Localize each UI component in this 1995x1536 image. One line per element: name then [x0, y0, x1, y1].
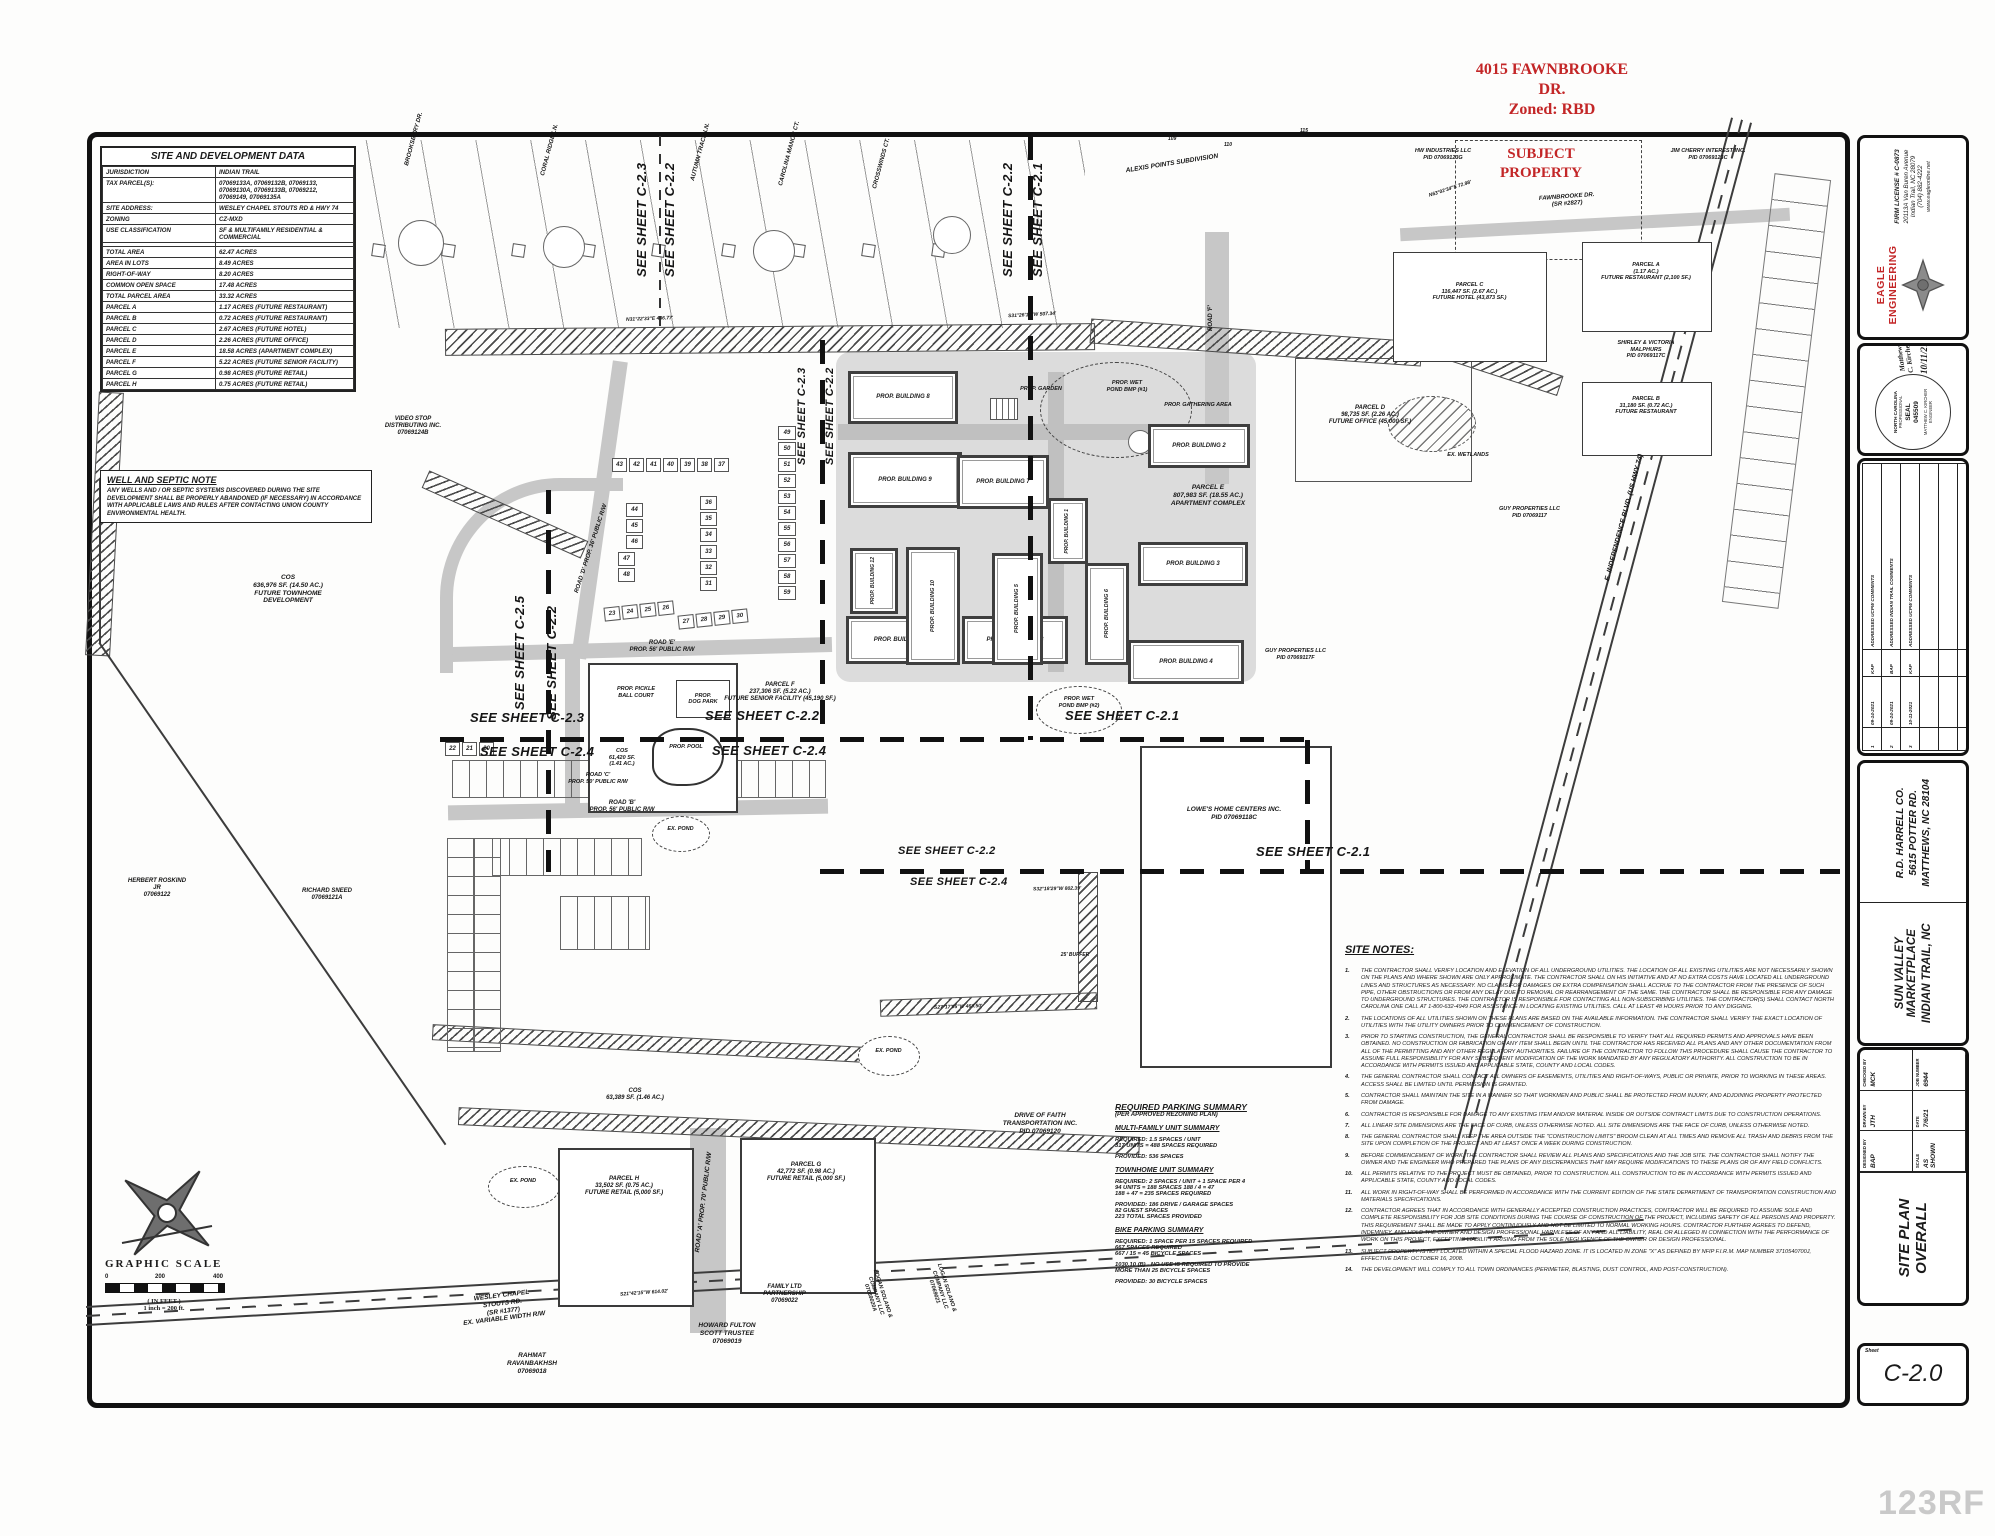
firm-license: FIRM LICENSE # C-0873	[1894, 142, 1901, 231]
site-plan-sheet: { "red_annotations": { "address": "4015 …	[0, 0, 1995, 1536]
site-note-text: PRIOR TO STARTING CONSTRUCTION, THE GENE…	[1361, 1034, 1837, 1070]
parking-mf-title: MULTI-FAMILY UNIT SUMMARY	[1115, 1125, 1335, 1132]
parking-th-provided: PROVIDED: 186 DRIVE / GARAGE SPACES 82 G…	[1115, 1202, 1335, 1220]
see-sheet-label: SEE SHEET C-2.3	[796, 352, 809, 480]
site-data-value: CZ-MXD	[215, 214, 353, 225]
site-data-key: ZONING	[103, 214, 216, 225]
site-data-row: TAX PARCEL(S): 07069133A, 07069132B, 070…	[103, 178, 354, 203]
lot-number: 52	[778, 474, 796, 488]
parcel-g-label: PARCEL G 42,772 SF. (0.98 AC.) FUTURE RE…	[744, 1162, 868, 1184]
lot-number: 35	[700, 512, 717, 526]
building: PROP. BUILDING 5	[992, 553, 1043, 665]
building-label: PROP. BUILDING 6	[1104, 589, 1110, 638]
site-note-number: 8.	[1345, 1134, 1355, 1149]
road-c-label: ROAD 'C' PROP. 50' PUBLIC R/W	[560, 772, 636, 785]
site-data-key: USE CLASSIFICATION	[103, 225, 216, 243]
drawing-field: JOB NUMBER 6944	[1913, 1050, 1966, 1091]
lot-number: 56	[778, 538, 796, 552]
lot-group: 4748	[618, 552, 635, 582]
wet-pond-1-label: PROP. WET POND BMP (#1)	[1092, 380, 1162, 393]
firm-name: EAGLE ENGINEERING	[1876, 237, 1898, 333]
ex-pond-label: EX. POND	[866, 1048, 911, 1055]
site-data-value: 33.32 ACRES	[215, 291, 353, 302]
building: PROP. BUILDING 10	[906, 547, 960, 665]
lot-number: 25	[639, 602, 656, 618]
field-label: JOB NUMBER	[1915, 1053, 1920, 1087]
site-data-row: PARCEL B 0.72 ACRES (FUTURE RESTAURANT)	[103, 313, 354, 324]
house-icon	[511, 243, 526, 258]
site-data-value: WESLEY CHAPEL STOUTS RD & HWY 74	[215, 203, 353, 214]
owner-guy-1: GUY PROPERTIES LLC PID 07069117	[1482, 506, 1577, 519]
see-sheet-label: SEE SHEET C-2.2	[662, 150, 678, 290]
revision-issue	[1920, 464, 1939, 650]
ex-pond	[858, 1036, 920, 1076]
lot-number: 40	[663, 458, 678, 472]
owner-family-ltd: FAMILY LTD PARTNERSHIP 07069022	[742, 1284, 827, 1306]
sub-lot-number: 109	[1168, 136, 1176, 142]
site-note-text: SUBJECT PROPERTY IS NOT LOCATED WITHIN A…	[1361, 1249, 1837, 1264]
site-data-row: PARCEL E 18.58 ACRES (APARTMENT COMPLEX)	[103, 346, 354, 357]
site-note-text: CONTRACTOR AGREES THAT IN ACCORDANCE WIT…	[1361, 1208, 1837, 1244]
site-note-number: 1.	[1345, 968, 1355, 1012]
gathering-area-label: PROP. GATHERING AREA	[1148, 402, 1248, 409]
drawing-field: DATE 7/6/21	[1913, 1091, 1966, 1132]
site-note-text: THE CONTRACTOR SHALL VERIFY LOCATION AND…	[1361, 968, 1837, 1012]
lot-pattern	[560, 896, 650, 950]
lot-number: 23	[603, 606, 620, 622]
site-data-row: TOTAL PARCEL AREA 33.32 ACRES	[103, 291, 354, 302]
subdivision-house-row	[372, 244, 1002, 262]
revisions-block: 1 09-14-2021 KAP ADDRESSED UCPW COMMENTS…	[1857, 458, 1969, 756]
site-note: 3. PRIOR TO STARTING CONSTRUCTION, THE G…	[1345, 1034, 1837, 1070]
site-note: 7. ALL LINEAR SITE DIMENSIONS ARE THE FA…	[1345, 1123, 1837, 1130]
site-data-row: SITE ADDRESS: WESLEY CHAPEL STOUTS RD & …	[103, 203, 354, 214]
site-note-number: 14.	[1345, 1267, 1355, 1274]
lot-number: 27	[677, 614, 694, 630]
lot-number: 41	[646, 458, 661, 472]
road-f-label: ROAD 'F'	[1208, 288, 1215, 348]
revision-date: 09-14-2021	[1863, 677, 1882, 728]
lot-number: 31	[700, 577, 717, 591]
revision-header-row: NO. DATE BY ISSUE	[1958, 464, 1970, 751]
lot-number: 34	[700, 528, 717, 542]
field-label: DESIGNED BY	[1862, 1134, 1867, 1168]
site-note-number: 6.	[1345, 1112, 1355, 1119]
cos-g-label: COS 63,389 SF. (1.46 AC.)	[590, 1088, 680, 1102]
lot-number: 43	[612, 458, 627, 472]
site-note-text: THE DEVELOPMENT WILL COMPLY TO ALL TOWN …	[1361, 1267, 1728, 1274]
site-data-value: 2.67 ACRES (FUTURE HOTEL)	[215, 324, 353, 335]
firm-title-block: EAGLE ENGINEERING FIRM LICENSE # C-0873 …	[1857, 135, 1969, 340]
seal-block: NORTH CAROLINA PROFESSIONAL SEAL 045509 …	[1857, 343, 1969, 456]
see-sheet-label: SEE SHEET C-2.3	[634, 150, 650, 290]
garden-plots	[990, 398, 1018, 420]
revision-by: KAP	[1901, 650, 1920, 677]
firm-phone: (704) 882-4222	[1917, 142, 1924, 231]
see-sheet-label: SEE SHEET C-2.2	[898, 845, 996, 858]
parcel-a-label: PARCEL A (1.17 AC.) FUTURE RESTAURANT (2…	[1586, 262, 1706, 282]
site-data-key: AREA IN LOTS	[103, 258, 216, 269]
lot-number: 54	[778, 506, 796, 520]
sub-lot-number: 110	[1224, 142, 1232, 148]
site-note: 6. CONTRACTOR IS RESPONSIBLE FOR DAMAGE …	[1345, 1112, 1837, 1119]
building-label: PROP. BUILDING 12	[871, 557, 877, 604]
site-note: 11. ALL WORK IN RIGHT-OF-WAY SHALL BE PE…	[1345, 1190, 1837, 1205]
parcel-a-outline	[1582, 242, 1712, 332]
project-name-2: INDIAN TRAIL, NC	[1921, 923, 1933, 1023]
site-data-value: 0.72 ACRES (FUTURE RESTAURANT)	[215, 313, 353, 324]
lot-number: 59	[778, 586, 796, 600]
house-icon	[861, 243, 876, 258]
project-block: SUN VALLEY MARKETPLACE INDIAN TRAIL, NC …	[1857, 760, 1969, 1046]
see-sheet-label: SEE SHEET C-2.3	[470, 710, 584, 726]
site-data-value: 18.58 ACRES (APARTMENT COMPLEX)	[215, 346, 353, 357]
lot-number: 29	[713, 610, 730, 626]
field-label: DRAWN BY	[1862, 1094, 1867, 1128]
site-data-key: TOTAL AREA	[103, 247, 216, 258]
site-data-value: 2.26 ACRES (FUTURE OFFICE)	[215, 335, 353, 346]
section-line	[1028, 136, 1033, 740]
lot-number: 51	[778, 458, 796, 472]
section-line	[659, 136, 661, 328]
seal-profession: PROFESSIONAL	[1898, 396, 1903, 429]
parking-th-required: REQUIRED: 2 SPACES / UNIT + 1 SPACE PER …	[1115, 1179, 1335, 1197]
sheet-number-block: Sheet C-2.0	[1857, 1343, 1969, 1406]
lot-number: 33	[700, 545, 717, 559]
site-data-value: SF & MULTIFAMILY RESIDENTIAL & COMMERCIA…	[215, 225, 353, 243]
graphic-scale: GRAPHIC SCALE 0 200 400 ( IN FEET ) 1 in…	[105, 1258, 245, 1312]
lot-number: 58	[778, 570, 796, 584]
site-data-row: PARCEL D 2.26 ACRES (FUTURE OFFICE)	[103, 335, 354, 346]
graphic-scale-title: GRAPHIC SCALE	[105, 1258, 245, 1270]
subdivision-lot-pattern	[345, 140, 1085, 328]
site-data-value: 0.98 ACRES (FUTURE RETAIL)	[215, 368, 353, 379]
see-sheet-label: SEE SHEET C-2.4	[910, 876, 1008, 889]
site-note: 4. THE GENERAL CONTRACTOR SHALL CONTACT …	[1345, 1074, 1837, 1089]
sheet-number: C-2.0	[1860, 1360, 1966, 1388]
revision-row	[1920, 464, 1939, 751]
north-arrow-icon	[112, 1158, 222, 1268]
building: PROP. BUILDING 8	[848, 371, 958, 424]
owner-howard-fulton: HOWARD FULTON SCOTT TRUSTEE 07069019	[672, 1322, 782, 1345]
parcel-f-label: PARCEL F 237,306 SF. (5.22 AC.) FUTURE S…	[695, 682, 865, 704]
field-value: JTH	[1870, 1094, 1877, 1128]
drawing-field: SCALE AS SHOWN	[1913, 1131, 1966, 1172]
parcel-e-label: PARCEL E 807,983 SF. (18.55 AC.) APARTME…	[1148, 484, 1268, 507]
revision-date	[1939, 677, 1958, 728]
eagle-logo-icon	[1901, 258, 1945, 312]
client-address-2: MATTHEWS, NC 28104	[1921, 779, 1932, 887]
site-data-value: 8.49 ACRES	[215, 258, 353, 269]
site-data-key: PARCEL G	[103, 368, 216, 379]
site-data-row: PARCEL G 0.98 ACRES (FUTURE RETAIL)	[103, 368, 354, 379]
drawing-field: DESIGNED BY BAP	[1860, 1131, 1913, 1172]
site-note-text: THE GENERAL CONTRACTOR SHALL CONTACT ALL…	[1361, 1074, 1837, 1089]
site-note-number: 2.	[1345, 1016, 1355, 1031]
see-sheet-label: SEE SHEET C-2.1	[1065, 708, 1179, 724]
site-note: 10. ALL PERMITS RELATIVE TO THE PROJECT …	[1345, 1171, 1837, 1186]
seal-role: ENGINEER	[1928, 401, 1933, 423]
revision-date: 09-24-2021	[1882, 677, 1901, 728]
owner-roskind: HERBERT ROSKIND JR 07069122	[112, 878, 202, 900]
site-note-number: 11.	[1345, 1190, 1355, 1205]
site-data-row: AREA IN LOTS 8.49 ACRES	[103, 258, 354, 269]
firm-address2: Indian Trail, NC 28079	[1910, 142, 1917, 231]
site-data-row: TOTAL AREA 62.47 ACRES	[103, 247, 354, 258]
site-data-key: RIGHT-OF-WAY	[103, 269, 216, 280]
site-data-key: PARCEL F	[103, 357, 216, 368]
ex-pond	[652, 816, 710, 852]
site-data-title: SITE AND DEVELOPMENT DATA	[102, 148, 354, 166]
site-data-key: PARCEL B	[103, 313, 216, 324]
see-sheet-label: SEE SHEET C-2.1	[1256, 844, 1370, 860]
parcel-b-label: PARCEL B 31,180 SF. (0.72 AC.) FUTURE RE…	[1588, 396, 1704, 416]
firm-address1: 20113A Van Buren Avenue	[1903, 142, 1910, 231]
lot-pattern	[492, 838, 642, 876]
revision-by	[1939, 650, 1958, 677]
parking-th-title: TOWNHOME UNIT SUMMARY	[1115, 1167, 1335, 1174]
buffer-label: 25' BUFFER	[1050, 952, 1100, 958]
seal-signature: Matthew C. Kircher	[1895, 343, 1915, 375]
parking-bike-required: REQUIRED: 1 SPACE PER 15 SPACES REQUIRED…	[1115, 1239, 1335, 1257]
parking-bike-title: BIKE PARKING SUMMARY	[1115, 1227, 1335, 1234]
cul-de-sac	[753, 230, 795, 272]
building: PROP. BUILDING 1	[1048, 498, 1088, 564]
field-value: AS SHOWN	[1923, 1134, 1937, 1168]
sub-lot-number: 115	[1300, 128, 1308, 134]
field-label: SCALE	[1915, 1134, 1920, 1168]
revision-header: ISSUE	[1958, 464, 1970, 650]
revision-no	[1939, 728, 1958, 751]
revision-row: 2 09-24-2021 BAP ADDRESSED INDIAN TRAIL …	[1882, 464, 1901, 751]
lot-number: 57	[778, 554, 796, 568]
parking-title: REQUIRED PARKING SUMMARY	[1115, 1102, 1335, 1112]
owner-jim-cherry: JIM CHERRY INTEREST INC. PID 07069123C	[1648, 148, 1768, 161]
field-value: 6944	[1923, 1053, 1930, 1087]
site-data-value: 62.47 ACRES	[215, 247, 353, 258]
section-line	[546, 490, 551, 872]
revision-row: 1 09-14-2021 KAP ADDRESSED UCPW COMMENTS	[1863, 464, 1882, 751]
see-sheet-label: SEE SHEET C-2.2	[1000, 150, 1016, 290]
site-data-row: PARCEL C 2.67 ACRES (FUTURE HOTEL)	[103, 324, 354, 335]
firm-web: www.eagleonline.net	[1926, 142, 1932, 231]
site-data-key: PARCEL H	[103, 379, 216, 390]
site-note-text: CONTRACTOR SHALL MAINTAIN THE SITE IN A …	[1361, 1093, 1837, 1108]
revision-header: DATE	[1958, 677, 1970, 728]
sheet-label: Sheet	[1865, 1348, 1879, 1354]
wet-pond-2-label: PROP. WET POND BMP (#2)	[1044, 696, 1114, 709]
site-data-rows: JURISDICTION INDIAN TRAIL TAX PARCEL(S):…	[103, 167, 354, 390]
site-data-row: ZONING CZ-MXD	[103, 214, 354, 225]
house-icon	[721, 243, 736, 258]
parking-mf-required: REQUIRED: 1.5 SPACES / UNIT 317 UNITS = …	[1115, 1137, 1335, 1149]
lot-number: 42	[629, 458, 644, 472]
lowes-parcel	[1140, 746, 1332, 1068]
lot-number: 37	[714, 458, 729, 472]
building-label: PROP. BUILDING 5	[1014, 584, 1020, 633]
lot-number: 28	[695, 612, 712, 628]
lot-number: 30	[731, 608, 748, 624]
site-data-key: PARCEL E	[103, 346, 216, 357]
site-data-row: JURISDICTION INDIAN TRAIL	[103, 167, 354, 178]
road-b-label: ROAD 'B' PROP. 56' PUBLIC R/W	[572, 800, 672, 814]
site-data-value: 5.22 ACRES (FUTURE SENIOR FACILITY)	[215, 357, 353, 368]
parking-subtitle: (PER APPROVED REZONING PLAN)	[1115, 1112, 1335, 1118]
drawing-field: CHECKED BY MCK	[1860, 1050, 1913, 1091]
road-e-label: ROAD 'E' PROP. 56' PUBLIC R/W	[612, 640, 712, 654]
pickleball-label: PROP. PICKLE BALL COURT	[596, 686, 676, 699]
parcel-b-outline	[1582, 382, 1712, 456]
lot-number: 21	[462, 742, 477, 756]
parking-summary: REQUIRED PARKING SUMMARY (PER APPROVED R…	[1115, 1102, 1335, 1285]
revision-no: 1	[1863, 728, 1882, 751]
site-note-text: THE LOCATIONS OF ALL UTILITIES SHOWN ON …	[1361, 1016, 1837, 1031]
revision-by	[1920, 650, 1939, 677]
client-address-1: 5615 POTTER RD.	[1908, 790, 1919, 876]
site-note-number: 9.	[1345, 1153, 1355, 1168]
scale-tick-0: 0	[105, 1274, 108, 1280]
revision-row: 3 10-11-2021 KAP ADDRESSED UCPW COMMENTS	[1901, 464, 1920, 751]
drawing-field: DRAWN BY JTH	[1860, 1091, 1913, 1132]
site-data-value: INDIAN TRAIL	[215, 167, 353, 178]
revision-issue: ADDRESSED INDIAN TRAIL COMMENTS	[1882, 464, 1901, 650]
parking-mf-provided: PROVIDED: 536 SPACES	[1115, 1154, 1335, 1160]
site-note-number: 12.	[1345, 1208, 1355, 1244]
site-note: 14. THE DEVELOPMENT WILL COMPLY TO ALL T…	[1345, 1267, 1837, 1274]
cul-de-sac	[543, 226, 585, 268]
site-data-key: PARCEL D	[103, 335, 216, 346]
revision-by: KAP	[1863, 650, 1882, 677]
see-sheet-label: SEE SHEET C-2.4	[712, 743, 826, 759]
site-note-number: 10.	[1345, 1171, 1355, 1186]
well-septic-title: WELL AND SEPTIC NOTE	[107, 475, 365, 485]
scale-tick-400: 400	[213, 1274, 223, 1280]
lot-number: 44	[626, 503, 643, 517]
revision-rows: 1 09-14-2021 KAP ADDRESSED UCPW COMMENTS…	[1863, 464, 1958, 751]
site-data-row: PARCEL H 0.75 ACRES (FUTURE RETAIL)	[103, 379, 354, 390]
revision-issue: ADDRESSED UCPW COMMENTS	[1863, 464, 1882, 650]
lot-group: 4950515253545556575859	[778, 426, 796, 600]
lot-number: 49	[778, 426, 796, 440]
lot-number: 39	[680, 458, 695, 472]
revision-no	[1920, 728, 1939, 751]
cos-small-label: COS 61,420 SF. (1.41 AC.)	[594, 748, 650, 768]
building-label: PROP. BUILDING 1	[1065, 509, 1071, 554]
building: PROP. BUILDING 4	[1128, 640, 1244, 684]
boundary-hatch-north	[445, 323, 1095, 356]
cos-townhome-label: COS 636,976 SF. (14.50 AC.) FUTURE TOWNH…	[228, 574, 348, 605]
site-data-row: PARCEL F 5.22 ACRES (FUTURE SENIOR FACIL…	[103, 357, 354, 368]
lot-number: 45	[626, 519, 643, 533]
section-line	[820, 869, 1840, 874]
building: PROP. BUILDING 3	[1138, 542, 1248, 586]
site-data-key: SITE ADDRESS:	[103, 203, 216, 214]
field-label: CHECKED BY	[1862, 1053, 1867, 1087]
site-data-key: COMMON OPEN SPACE	[103, 280, 216, 291]
scale-bar	[105, 1283, 225, 1293]
site-data-value: 8.20 ACRES	[215, 269, 353, 280]
lot-number: 24	[621, 604, 638, 620]
lot-group: 444546	[626, 503, 643, 549]
parking-bike-note: 1030.10 (B) - NO USE IS REQUIRED TO PROV…	[1115, 1262, 1335, 1274]
pool-label: PROP. POOL	[658, 744, 714, 751]
owner-hw-industries: HW INDUSTRIES LLC PID 07069123G	[1398, 148, 1488, 161]
bearing-label: S32°18'29"W 802.39'	[1033, 886, 1081, 893]
cul-de-sac	[933, 216, 971, 254]
scale-ratio: 1 inch = 200 ft.	[105, 1305, 223, 1312]
site-data-row: USE CLASSIFICATION SF & MULTIFAMILY RESI…	[103, 225, 354, 243]
revision-header: BY	[1958, 650, 1970, 677]
lot-pattern	[447, 838, 474, 1052]
parcel-h-label: PARCEL H 33,502 SF. (0.75 AC.) FUTURE RE…	[562, 1176, 686, 1198]
sheet-title-block: SITE PLAN OVERALL DESIGNED BY BAP DRAWN …	[1857, 1047, 1969, 1306]
lot-number: 36	[700, 496, 717, 510]
owner-malphurs: SHIRLEY & VICTORIA MALPHURS PID 07069117…	[1592, 340, 1700, 360]
drive-of-faith-label: DRIVE OF FAITH TRANSPORTATION INC. PID 0…	[985, 1112, 1095, 1135]
site-data-key: PARCEL A	[103, 302, 216, 313]
site-note-number: 4.	[1345, 1074, 1355, 1089]
revision-by: BAP	[1882, 650, 1901, 677]
see-sheet-label: SEE SHEET C-2.2	[705, 708, 819, 724]
site-data-row: PARCEL A 1.17 ACRES (FUTURE RESTAURANT)	[103, 302, 354, 313]
lot-number: 55	[778, 522, 796, 536]
lot-number: 46	[626, 535, 643, 549]
site-data-value: 07069133A, 07069132B, 07069133, 07069130…	[215, 178, 353, 203]
building: PROP. BUILDING 6	[1085, 563, 1129, 665]
building-label: PROP. BUILDING 10	[930, 580, 936, 632]
field-value: BAP	[1870, 1134, 1877, 1168]
revision-header: NO.	[1958, 728, 1970, 751]
lot-number: 26	[657, 600, 674, 616]
see-sheet-label: SEE SHEET C-2.4	[480, 744, 594, 760]
section-line	[1305, 740, 1310, 872]
client-name: R.D. HARRELL CO.	[1895, 787, 1906, 878]
site-note-number: 13.	[1345, 1249, 1355, 1264]
house-icon	[371, 243, 386, 258]
lot-number: 50	[778, 442, 796, 456]
revision-no: 3	[1901, 728, 1920, 751]
site-development-data-table: SITE AND DEVELOPMENT DATA JURISDICTION I…	[100, 146, 356, 392]
site-note: 2. THE LOCATIONS OF ALL UTILITIES SHOWN …	[1345, 1016, 1837, 1031]
site-data-key: JURISDICTION	[103, 167, 216, 178]
owner-rahmat: RAHMAT RAVANBAKHSH 07069018	[482, 1352, 582, 1375]
cul-de-sac	[398, 220, 444, 266]
site-note-text: ALL PERMITS RELATIVE TO THE PROJECT MUST…	[1361, 1171, 1837, 1186]
site-note-text: THE GENERAL CONTRACTOR SHALL KEEP THE AR…	[1361, 1134, 1837, 1149]
site-note-text: ALL LINEAR SITE DIMENSIONS ARE THE FACE …	[1361, 1123, 1809, 1130]
field-value: 7/6/21	[1923, 1094, 1930, 1128]
sheet-title-line1: SITE PLAN	[1896, 1199, 1913, 1277]
well-septic-body: ANY WELLS AND / OR SEPTIC SYSTEMS DISCOV…	[107, 488, 365, 518]
sheet-title-line2: OVERALL	[1913, 1202, 1930, 1274]
stock-watermark: 123RF	[1878, 1484, 1985, 1523]
well-septic-note: WELL AND SEPTIC NOTE ANY WELLS AND / OR …	[100, 470, 372, 523]
lot-group: 43424140393837	[612, 458, 729, 472]
ex-pond	[488, 1166, 560, 1208]
red-address-annotation: 4015 FAWNBROOKE DR. Zoned: RBD	[1452, 60, 1652, 120]
seal-date: 10/11/21	[1919, 343, 1929, 374]
revision-row	[1939, 464, 1958, 751]
parcel-d-label: PARCEL D 98,735 SF. (2.26 AC.) FUTURE OF…	[1305, 405, 1435, 427]
ex-pond-label: EX. POND	[498, 1178, 548, 1185]
revision-date	[1920, 677, 1939, 728]
section-line	[440, 737, 1310, 742]
site-note: 12. CONTRACTOR AGREES THAT IN ACCORDANCE…	[1345, 1208, 1837, 1244]
site-note-number: 5.	[1345, 1093, 1355, 1108]
field-value: MCK	[1870, 1053, 1877, 1087]
owner-sneed: RICHARD SNEED 07069121A	[282, 888, 372, 902]
site-note: 5. CONTRACTOR SHALL MAINTAIN THE SITE IN…	[1345, 1093, 1837, 1108]
